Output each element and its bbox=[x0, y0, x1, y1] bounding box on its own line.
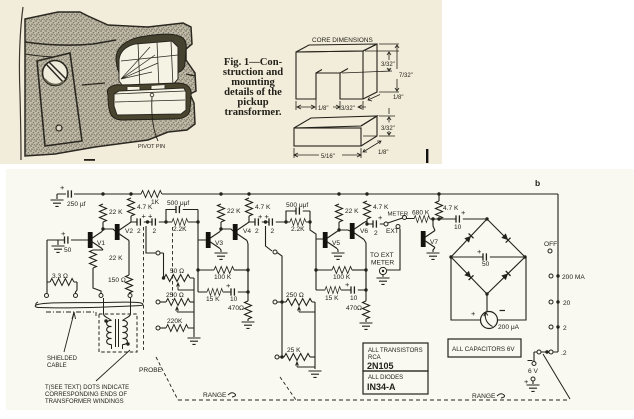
svg-text:22 K: 22 K bbox=[345, 208, 359, 215]
svg-text:6 V: 6 V bbox=[528, 368, 538, 375]
svg-text:METER: METER bbox=[371, 260, 394, 267]
svg-text:V7: V7 bbox=[430, 239, 438, 246]
svg-text:2.2K: 2.2K bbox=[291, 226, 305, 233]
svg-text:V3: V3 bbox=[215, 240, 223, 247]
svg-text:15 K: 15 K bbox=[206, 296, 220, 303]
svg-text:+: + bbox=[226, 281, 231, 290]
svg-text:2: 2 bbox=[271, 228, 275, 235]
svg-text:4.7 K: 4.7 K bbox=[137, 204, 153, 211]
svg-text:PROBE: PROBE bbox=[139, 367, 163, 374]
svg-text:500 μμf: 500 μμf bbox=[286, 202, 308, 209]
svg-text:50: 50 bbox=[64, 247, 72, 254]
svg-text:T(SEE TEXT) DOTS INDICATE: T(SEE TEXT) DOTS INDICATE bbox=[45, 385, 129, 391]
svg-text:b: b bbox=[535, 178, 540, 188]
svg-text:IN34-A: IN34-A bbox=[367, 382, 396, 392]
svg-text:2: 2 bbox=[137, 228, 141, 235]
svg-text:2.2K: 2.2K bbox=[173, 226, 187, 233]
svg-text:22 K: 22 K bbox=[227, 208, 241, 215]
svg-text:2: 2 bbox=[374, 230, 378, 237]
svg-text:4.7 K: 4.7 K bbox=[373, 204, 389, 211]
svg-text:transformer.: transformer. bbox=[225, 107, 282, 118]
svg-text:+: + bbox=[60, 183, 65, 192]
svg-text:V6: V6 bbox=[360, 228, 368, 235]
svg-text:2: 2 bbox=[153, 228, 157, 235]
svg-text:+: + bbox=[61, 229, 66, 238]
svg-text:TO EXT: TO EXT bbox=[370, 252, 394, 259]
svg-text:500 μμf: 500 μμf bbox=[167, 200, 189, 207]
svg-text:10: 10 bbox=[230, 296, 238, 303]
svg-text:OFF: OFF bbox=[544, 241, 557, 248]
svg-text:PIVOT PIN: PIVOT PIN bbox=[138, 144, 165, 150]
svg-text:220K: 220K bbox=[167, 318, 183, 325]
svg-text:22 K: 22 K bbox=[109, 255, 123, 262]
svg-text:ALL CAPACITORS 6V: ALL CAPACITORS 6V bbox=[452, 346, 515, 353]
svg-text:+: + bbox=[461, 208, 466, 217]
svg-text:50 Ω: 50 Ω bbox=[170, 268, 184, 275]
svg-text:250 Ω: 250 Ω bbox=[286, 292, 304, 299]
svg-text:+: + bbox=[471, 309, 476, 318]
svg-text:V2: V2 bbox=[125, 228, 133, 235]
svg-text:680 K: 680 K bbox=[412, 210, 430, 217]
svg-text:EXT: EXT bbox=[386, 228, 399, 235]
svg-text:2: 2 bbox=[563, 325, 567, 332]
svg-text:CORRESPONDING ENDS OF: CORRESPONDING ENDS OF bbox=[45, 392, 127, 398]
svg-text:250 Ω: 250 Ω bbox=[166, 292, 184, 299]
svg-text:3/32": 3/32" bbox=[381, 126, 395, 132]
svg-text:200 μA: 200 μA bbox=[498, 324, 520, 331]
svg-text:5/16": 5/16" bbox=[321, 154, 335, 160]
svg-text:3/32": 3/32" bbox=[381, 62, 395, 68]
svg-text:10: 10 bbox=[350, 295, 358, 302]
svg-text:CABLE: CABLE bbox=[47, 363, 67, 369]
svg-text:2: 2 bbox=[255, 228, 259, 235]
svg-text:470Ω: 470Ω bbox=[228, 305, 244, 312]
svg-text:ALL TRANSISTORS: ALL TRANSISTORS bbox=[368, 348, 423, 354]
svg-text:150 Ω: 150 Ω bbox=[108, 277, 126, 284]
svg-text:50: 50 bbox=[482, 261, 490, 268]
svg-text:22 K: 22 K bbox=[109, 209, 123, 216]
svg-text:4.7 K: 4.7 K bbox=[255, 204, 271, 211]
svg-text:7/32": 7/32" bbox=[399, 73, 413, 79]
svg-text:100 K: 100 K bbox=[214, 274, 232, 281]
svg-text:3.3 Ω: 3.3 Ω bbox=[52, 273, 68, 280]
svg-text:20: 20 bbox=[563, 300, 571, 307]
svg-text:.2: .2 bbox=[561, 350, 567, 357]
svg-text:RANGE: RANGE bbox=[203, 392, 227, 399]
svg-text:2N105: 2N105 bbox=[367, 361, 394, 371]
svg-text:+: + bbox=[378, 213, 383, 222]
svg-text:25 K: 25 K bbox=[287, 347, 301, 354]
svg-text:CORE DIMENSIONS: CORE DIMENSIONS bbox=[312, 37, 373, 44]
svg-text:V1: V1 bbox=[97, 240, 105, 247]
svg-text:SHIELDED: SHIELDED bbox=[47, 356, 78, 362]
svg-text:200 MA: 200 MA bbox=[562, 274, 585, 281]
svg-text:+ +: + + bbox=[258, 212, 269, 221]
svg-text:METER: METER bbox=[388, 212, 409, 218]
svg-text:ALL DIODES: ALL DIODES bbox=[368, 375, 403, 381]
svg-text:1/8": 1/8" bbox=[393, 95, 403, 101]
svg-text:470Ω: 470Ω bbox=[346, 305, 362, 312]
svg-text:4.7 K: 4.7 K bbox=[443, 205, 459, 212]
svg-text:1/8": 1/8" bbox=[318, 106, 328, 112]
svg-text:RANGE: RANGE bbox=[472, 393, 496, 400]
svg-text:1/8": 1/8" bbox=[378, 150, 388, 156]
svg-text:3/32": 3/32" bbox=[341, 106, 355, 112]
svg-text:V4: V4 bbox=[243, 228, 251, 235]
svg-text:250 µf: 250 µf bbox=[67, 201, 86, 208]
svg-text:+ +: + + bbox=[142, 212, 153, 221]
svg-text:TRANSFORMER WINDINGS: TRANSFORMER WINDINGS bbox=[45, 399, 124, 405]
svg-text:15 K: 15 K bbox=[325, 295, 339, 302]
svg-text:+: + bbox=[345, 280, 350, 289]
svg-text:V5: V5 bbox=[332, 240, 340, 247]
svg-text:10: 10 bbox=[454, 224, 462, 231]
svg-text:+: + bbox=[477, 247, 482, 256]
